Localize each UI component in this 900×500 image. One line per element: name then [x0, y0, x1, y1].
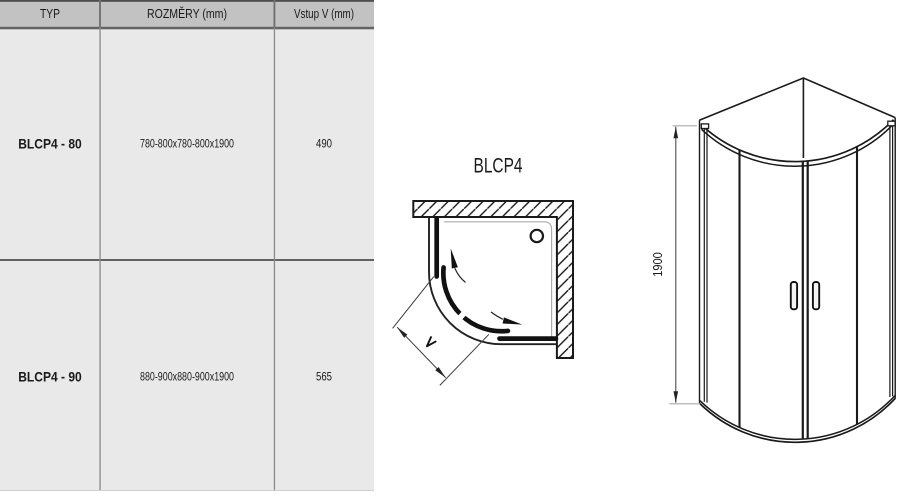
svg-text:BLCP4 - 80: BLCP4 - 80 [18, 136, 82, 152]
svg-text:BLCP4 - 90: BLCP4 - 90 [18, 369, 82, 385]
svg-text:Vstup V (mm): Vstup V (mm) [294, 6, 354, 21]
svg-text:1900: 1900 [651, 252, 665, 277]
svg-text:565: 565 [316, 372, 332, 384]
svg-text:780-800x780-800x1900: 780-800x780-800x1900 [140, 139, 234, 151]
svg-text:TYP: TYP [40, 6, 60, 21]
svg-text:ROZMĚRY (mm): ROZMĚRY (mm) [147, 6, 227, 21]
svg-text:490: 490 [316, 139, 332, 151]
svg-text:BLCP4: BLCP4 [474, 155, 523, 178]
svg-text:880-900x880-900x1900: 880-900x880-900x1900 [140, 372, 234, 384]
